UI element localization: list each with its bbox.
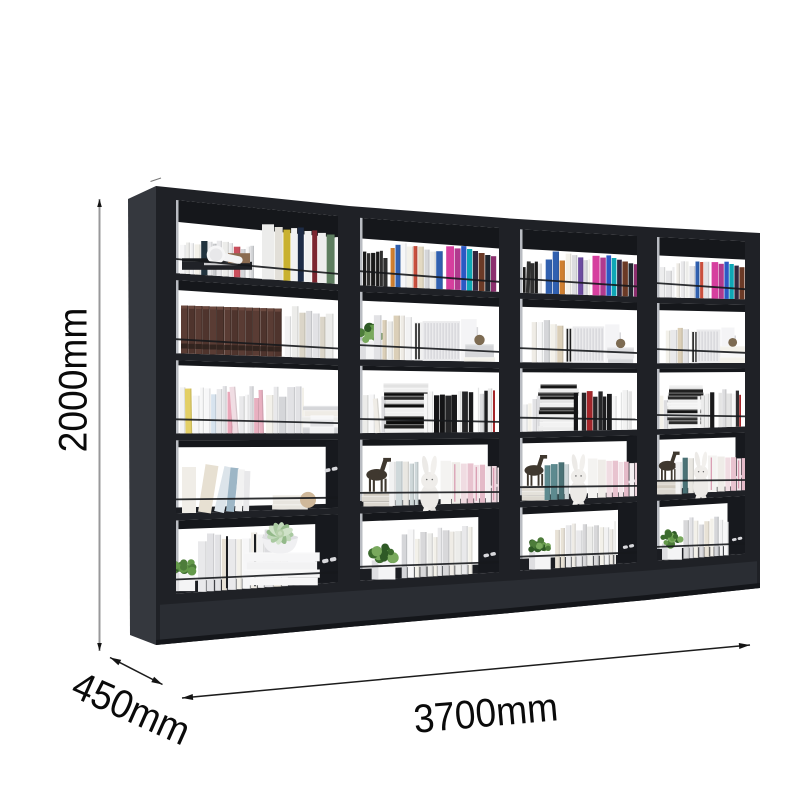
svg-text:2000mm: 2000mm	[51, 308, 96, 453]
